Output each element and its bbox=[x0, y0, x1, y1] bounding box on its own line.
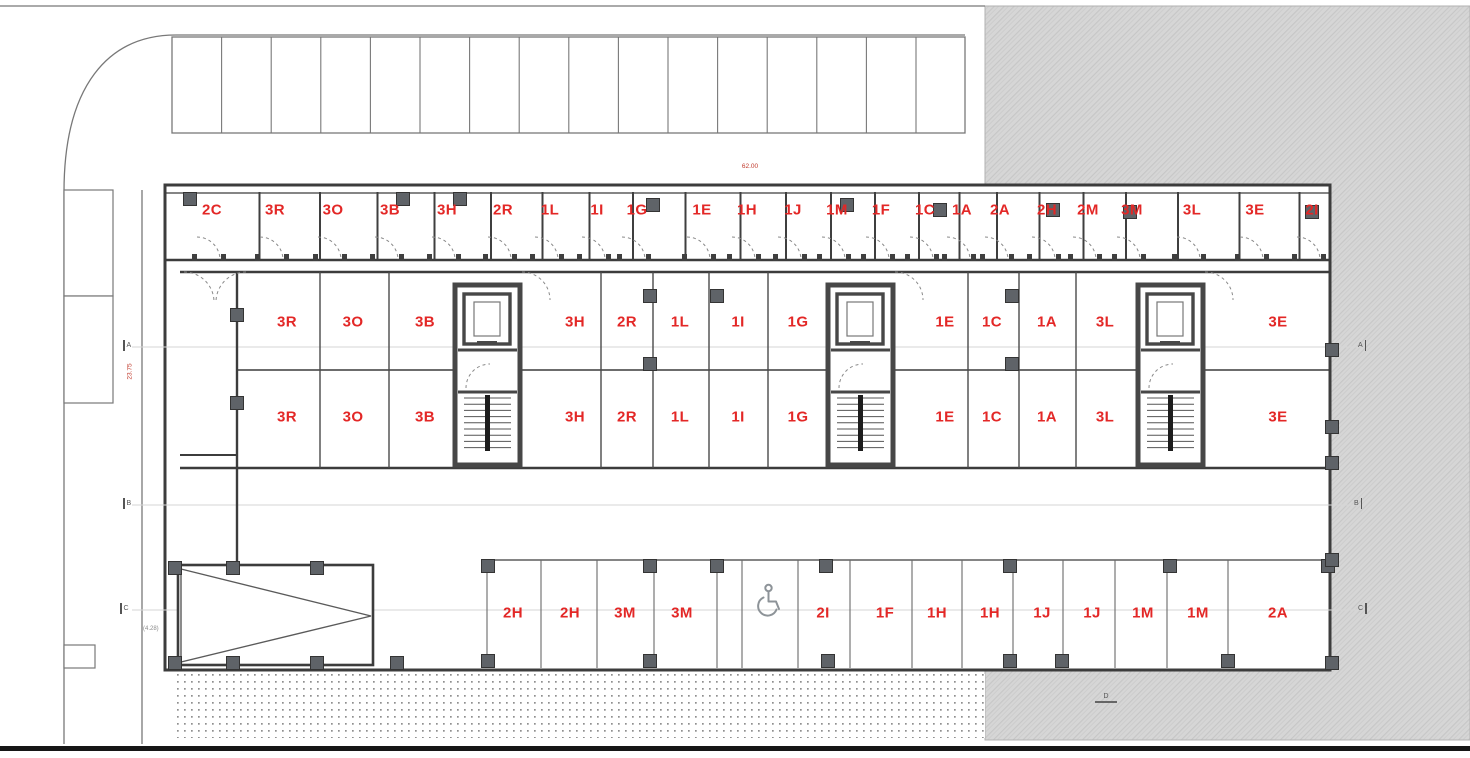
street-parking-left bbox=[64, 190, 113, 668]
surface-parking-top bbox=[172, 37, 965, 133]
ramp bbox=[178, 565, 373, 665]
sidewalk-stipple bbox=[175, 674, 985, 738]
floor-plan-canvas: 62.00 23.75 (4.28) A B C A B C D bbox=[0, 0, 1470, 758]
floor-plan-drawing bbox=[0, 0, 1470, 758]
property-boundary-line bbox=[0, 746, 1470, 751]
